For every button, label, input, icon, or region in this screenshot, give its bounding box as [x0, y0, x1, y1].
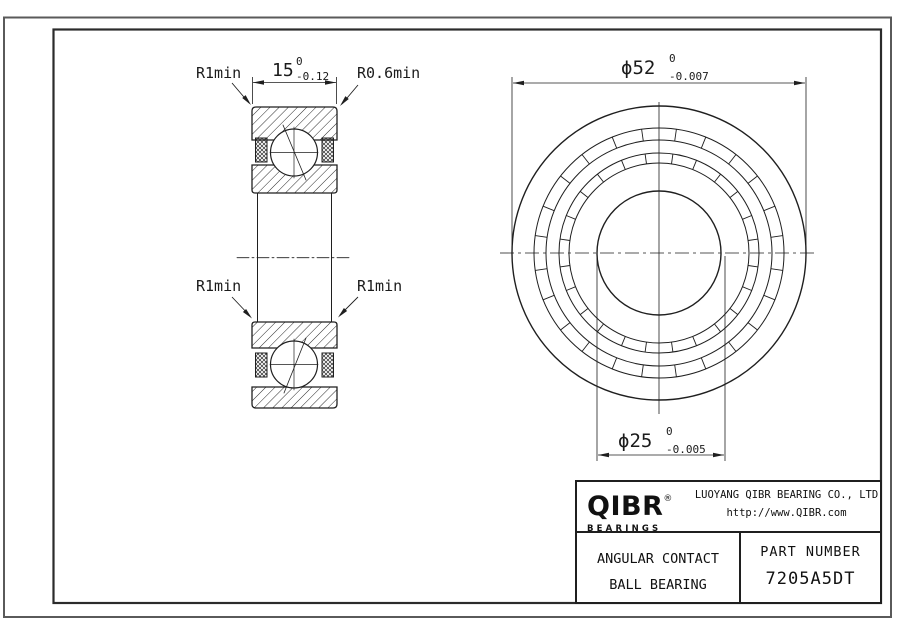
- company-cell: LUOYANG QIBR BEARING CO., LTD http://www…: [693, 482, 880, 531]
- bore-dim-tol-lower: -0.005: [666, 443, 706, 456]
- cage-pocket-line: [645, 342, 646, 352]
- cage-pocket-line: [622, 336, 626, 345]
- outer-ring-section-bottom: [252, 387, 337, 408]
- cage-pocket-line: [748, 266, 758, 267]
- radius-label-mid-left: R1min: [196, 277, 241, 295]
- cage-pocket-line: [645, 154, 646, 164]
- cage-pocket-line: [729, 342, 736, 352]
- cage-pocket-line: [748, 239, 758, 240]
- radius-label-top-right: R0.6min: [357, 64, 420, 82]
- cage-pocket-line: [535, 236, 547, 238]
- cage-pocket-line: [764, 206, 775, 211]
- cage-pocket-line: [612, 137, 617, 148]
- cage-pocket-line: [566, 216, 575, 220]
- leader-arrow: [338, 96, 348, 107]
- radius-label-top-left: R1min: [196, 64, 241, 82]
- cage-pocket-line: [675, 365, 677, 377]
- cage-section-bottom-left: [256, 353, 268, 377]
- cage-pocket-line: [597, 324, 603, 332]
- bearing-front-view: [500, 102, 818, 414]
- cage-pocket-line: [748, 176, 758, 183]
- bore-dim-tol-upper: 0: [666, 425, 673, 438]
- cage-pocket-line: [561, 323, 571, 330]
- radius-label-mid-right: R1min: [357, 277, 402, 295]
- part-number-value: 7205A5DT: [741, 569, 880, 589]
- cage-pocket-line: [580, 191, 588, 197]
- cage-pocket-line: [701, 137, 706, 148]
- part-number-cell: PART NUMBER 7205A5DT: [741, 533, 880, 604]
- qibr-logo: QIBR® BEARINGS: [577, 482, 693, 531]
- od-dim-value: ϕ52: [621, 57, 655, 79]
- cage-pocket-line: [672, 342, 673, 352]
- bearing-section-view: [237, 107, 352, 408]
- cage-pocket-line: [714, 174, 720, 182]
- company-website: http://www.QIBR.com: [693, 506, 880, 521]
- cage-pocket-line: [742, 216, 751, 220]
- cage-pocket-line: [642, 365, 644, 377]
- cage-section-bottom-right: [322, 353, 334, 377]
- title-block-header-row: QIBR® BEARINGS LUOYANG QIBR BEARING CO.,…: [577, 482, 880, 533]
- leader-arrow: [243, 309, 254, 320]
- drawing-sheet: 15 0 -0.12 R1min R0.6min R1min R1min: [0, 0, 900, 636]
- width-dim-tol-lower: -0.12: [296, 70, 329, 83]
- cage-pocket-line: [764, 295, 775, 300]
- product-type-cell: ANGULAR CONTACT BALL BEARING: [577, 533, 741, 604]
- bore-dim-value: ϕ25: [618, 430, 652, 452]
- cage-pocket-line: [771, 269, 783, 271]
- width-dim-value: 15: [272, 60, 294, 81]
- product-type-line1: ANGULAR CONTACT: [577, 546, 739, 572]
- cage-pocket-line: [582, 342, 589, 352]
- cage-section-top-left: [256, 138, 268, 162]
- width-dim-tol-upper: 0: [296, 55, 303, 68]
- cage-pocket-line: [730, 308, 738, 314]
- logo-text: QIBR: [587, 491, 663, 522]
- cage-pocket-line: [543, 295, 554, 300]
- width-dimension: 15 0 -0.12: [253, 55, 337, 104]
- od-dim-tol-lower: -0.007: [669, 70, 709, 83]
- cage-pocket-line: [672, 154, 673, 164]
- company-name: LUOYANG QIBR BEARING CO., LTD: [693, 488, 880, 503]
- cage-pocket-line: [622, 160, 626, 169]
- leader-arrow: [336, 308, 347, 319]
- cage-pocket-line: [701, 358, 706, 369]
- cage-pocket-line: [535, 269, 547, 271]
- registered-trademark-icon: ®: [663, 494, 672, 504]
- cage-section-top-right: [322, 138, 334, 162]
- cage-pocket-line: [742, 287, 751, 291]
- product-type-line2: BALL BEARING: [577, 572, 739, 598]
- dim-arrow-left: [253, 80, 264, 85]
- cage-pocket-line: [566, 287, 575, 291]
- cage-pocket-line: [642, 129, 644, 141]
- title-block-bottom-row: ANGULAR CONTACT BALL BEARING PART NUMBER…: [577, 533, 880, 604]
- cage-pocket-line: [560, 239, 570, 240]
- cage-pocket-line: [675, 129, 677, 141]
- title-block: QIBR® BEARINGS LUOYANG QIBR BEARING CO.,…: [575, 480, 882, 604]
- dim-arrow-left: [513, 81, 524, 86]
- cage-pocket-line: [729, 155, 736, 165]
- cage-pocket-line: [561, 176, 571, 183]
- dim-arrow-right: [794, 81, 805, 86]
- cage-pocket-line: [748, 323, 758, 330]
- cage-pocket-line: [582, 155, 589, 165]
- cage-pocket-line: [771, 236, 783, 238]
- cage-pocket-line: [714, 324, 720, 332]
- dim-arrow-left: [598, 453, 609, 458]
- cage-pocket-line: [597, 174, 603, 182]
- cage-pocket-line: [612, 358, 617, 369]
- cage-pocket-line: [693, 336, 697, 345]
- cage-pocket-line: [543, 206, 554, 211]
- leader-arrow: [242, 95, 252, 106]
- cage-pocket-line: [693, 160, 697, 169]
- cage-pocket-line: [560, 266, 570, 267]
- od-dim-tol-upper: 0: [669, 52, 676, 65]
- cage-pocket-line: [580, 308, 588, 314]
- cage-pocket-line: [730, 191, 738, 197]
- part-number-label: PART NUMBER: [741, 544, 880, 560]
- dim-arrow-right: [713, 453, 724, 458]
